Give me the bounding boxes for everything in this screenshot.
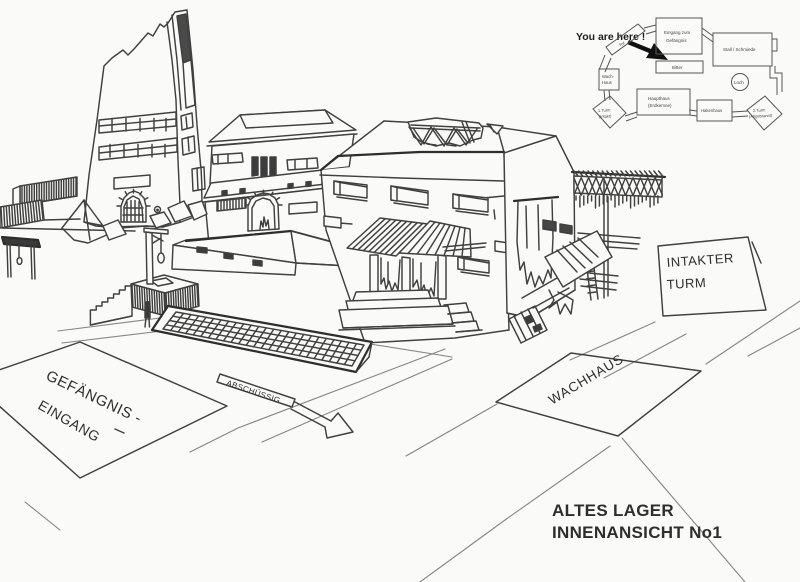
svg-text:You are here !: You are here ! [576,31,645,43]
svg-text:1.Turm: 1.Turm [598,107,611,113]
svg-text:Haus: Haus [602,80,612,85]
svg-text:Wach-: Wach- [602,74,615,79]
svg-text:(Intakt): (Intakt) [599,113,612,119]
svg-text:INNENANSICHT No1: INNENANSICHT No1 [552,523,722,542]
svg-text:Haupthaus: Haupthaus [648,96,671,101]
svg-text:Eingang zum: Eingang zum [664,30,691,35]
svg-text:2.Turm: 2.Turm [753,107,766,113]
svg-text:(Erdkemne): (Erdkemne) [648,103,672,108]
svg-text:Hakenhaus: Hakenhaus [701,108,722,113]
svg-text:Bitter: Bitter [672,65,683,70]
svg-text:Stall / Schmiede: Stall / Schmiede [723,47,756,52]
svg-text:Loch: Loch [734,80,744,85]
svg-text:ALTES LAGER: ALTES LAGER [552,501,674,520]
svg-text:TURM: TURM [666,275,706,292]
svg-text:Gefängnis: Gefängnis [666,38,687,43]
